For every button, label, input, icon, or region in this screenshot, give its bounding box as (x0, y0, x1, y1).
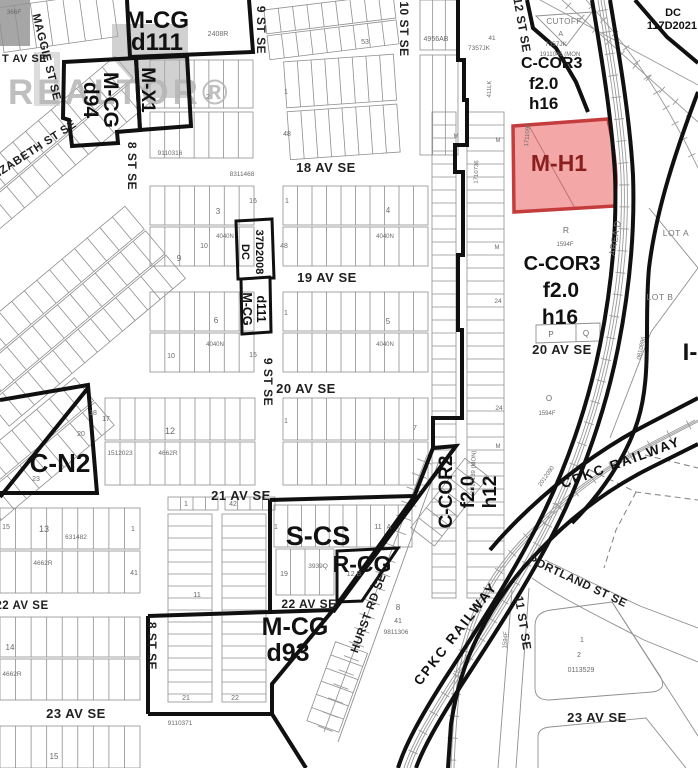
svg-text:d111: d111 (254, 295, 268, 322)
parcel-block (150, 333, 254, 372)
parcel-block (420, 55, 458, 155)
lot-number: 1 (274, 524, 278, 531)
zone-label-dc117-2: 117D2021 (647, 20, 697, 32)
street-10st: 10 ST SE (397, 1, 411, 56)
lot-number: 21 (182, 695, 190, 702)
parcel-label: 4956AB (424, 36, 449, 43)
lot-number: 1 (284, 89, 288, 96)
lot-number: 22 (231, 695, 239, 702)
zone-label-ig: I- (683, 339, 698, 366)
cutoff-lot-a: A (558, 29, 564, 38)
parcel-below-23av-outline (538, 718, 686, 768)
parcel-label: 4040N (216, 234, 234, 240)
parcel-block (264, 0, 396, 34)
parcel-label: 0113529 (568, 667, 595, 674)
parcel-label: 1710736 (474, 160, 481, 184)
parcel-label: 1594F (556, 242, 573, 248)
lot-number: 23 (32, 476, 40, 483)
zone-label-ccor3-mid-f: f2.0 (543, 279, 579, 302)
parcel-label: 631482 (65, 534, 87, 541)
zone-label-ccor3-top-h: h16 (529, 94, 558, 113)
parcel-label: Q (583, 329, 589, 338)
lot-number: M (454, 134, 459, 140)
parcel-block (283, 227, 428, 266)
lot-number: 17 (102, 416, 110, 423)
zone-label-dc37: 37D2008 DC (239, 230, 265, 275)
lot-number: 15 (2, 524, 10, 531)
parcel-block (105, 398, 255, 440)
lot-strip (467, 112, 504, 598)
lot-number: 4 (386, 206, 391, 215)
svg-text:37D2008: 37D2008 (253, 230, 265, 275)
lot-strip (222, 514, 266, 702)
lot-number: 15 (50, 752, 59, 761)
map-container[interactable]: REALTOR® M-CG d111 M-CG d94 M-X1 C-COR3 … (0, 0, 698, 768)
lot-number: 1 (580, 637, 584, 644)
parcel-label: 3939Q (308, 563, 328, 570)
lot-number: 2 (577, 652, 581, 659)
zone-label-ccor2: C-COR2 f2.0 h12 (436, 456, 501, 529)
svg-text:DC: DC (239, 244, 251, 260)
svg-text:M-CG: M-CG (240, 292, 254, 325)
parcel-label: 4040N (376, 342, 394, 348)
parcel-label: 7357JK (545, 41, 568, 48)
parcel-label: 8311468 (230, 171, 255, 178)
zone-label-cn2: C-N2 (30, 448, 91, 478)
parcel-label: 1911046 (MON (540, 52, 581, 58)
parcel-label: 7357JK (468, 45, 491, 52)
parcel-label: 53 (361, 39, 369, 46)
cutoff-label: CUTOFF (546, 17, 581, 26)
lot-number: 11 (193, 590, 201, 599)
lot-number: M (495, 245, 500, 251)
lot-number: 1 (284, 418, 288, 425)
parcel-block (283, 333, 428, 372)
lot-number: M (496, 444, 501, 450)
zone-label-mx1: M-X1 (137, 67, 158, 113)
parcel-label: 366F (7, 9, 22, 16)
zone-label-scs: S-CS (286, 521, 351, 551)
parcel-block (0, 617, 140, 657)
parcel-block (105, 442, 255, 485)
svg-text:C-COR2: C-COR2 (436, 456, 457, 529)
street-11st: 11 ST SE (512, 595, 534, 651)
lot-number: 14 (6, 643, 15, 652)
lot-a-label: LOT A (663, 228, 689, 238)
lot-number: 9 (177, 254, 182, 263)
parcel-label: 1594F (502, 631, 509, 649)
lot-number: 42 (229, 501, 237, 508)
parcel-label: O (546, 394, 552, 403)
zoning-map: REALTOR® M-CG d111 M-CG d94 M-X1 C-COR3 … (0, 0, 698, 768)
parcel-block (307, 642, 368, 733)
parcel-block (284, 54, 397, 108)
parcel-label: 4040N (376, 234, 394, 240)
zone-label-mcg-d111-mid: d111 M-CG (240, 292, 268, 325)
lot-number: 24 (494, 298, 502, 305)
parcel-block (0, 255, 185, 426)
lot-b-label: LOT B (647, 292, 674, 302)
lot-number: 16 (249, 198, 257, 205)
parcel-label: 1594F (538, 411, 555, 417)
street-20av-west: 20 AV SE (276, 381, 336, 396)
parcel-block (283, 398, 428, 440)
lot-number: 48 (280, 243, 288, 250)
parcel-label: 2012090 (538, 465, 557, 488)
zone-label-dc117: DC (665, 7, 681, 19)
parcel-label: 411LK (487, 80, 494, 97)
parcel-block (283, 186, 428, 225)
street-portland: PORTLAND ST SE (526, 554, 628, 610)
lot-strip (168, 514, 212, 702)
lot-number: 48 (283, 131, 291, 138)
parcel-label: 4040N (206, 342, 224, 348)
lot-number: 8 (396, 603, 401, 612)
street-17av: T AV SE (2, 53, 47, 65)
street-20av-east: 20 AV SE (532, 342, 592, 357)
lot-number: 19 (280, 571, 288, 578)
lot-number: 6 (214, 316, 219, 325)
parcel-label: R (563, 225, 569, 235)
parcel-block (0, 551, 140, 593)
svg-text:d94: d94 (79, 82, 102, 119)
parcel-label: 12 B (347, 571, 362, 578)
zone-label-rcg: R-CG (333, 551, 392, 577)
svg-text:h12: h12 (480, 476, 501, 509)
lot-number: 41 (394, 618, 402, 625)
lot-number: 7 (413, 425, 417, 432)
lot-number: 18 (89, 410, 97, 417)
parcel-label: 9110316 (158, 150, 183, 157)
street-22av-mid: 22 AV SE (281, 597, 336, 611)
parcel-label: 4662R (33, 560, 52, 567)
street-23av-east: 23 AV SE (567, 710, 627, 725)
zone-label-mcg-d111-top-2: d111 (131, 29, 183, 56)
parcel-block (0, 726, 140, 768)
zone-label-mh1: M-H1 (531, 150, 587, 176)
lot-number: 20 (77, 431, 85, 438)
parcel-label: 9110371 (168, 720, 193, 727)
parcel-block (0, 508, 140, 549)
parcel-block (150, 186, 254, 225)
parcel-block (150, 292, 254, 331)
lot-number: 11 (374, 524, 381, 531)
lot-number: 3 (216, 207, 221, 216)
street-9st-mid: 9 ST SE (261, 358, 275, 406)
parcel-block (0, 659, 140, 700)
parcel-label: 9811306 (384, 629, 409, 636)
street-8st-bottom: 8 ST SE (145, 622, 159, 670)
street-8st-top: 8 ST SE (125, 142, 139, 190)
parcel-label: 4662R (2, 671, 21, 678)
lot-number: 10 (200, 243, 208, 250)
parcel-label: 1512023 (107, 450, 133, 457)
lot-number: 24 (495, 405, 503, 412)
lot-number: 12 (165, 426, 175, 436)
lot-number: 1 (184, 501, 188, 508)
street-18av: 18 AV SE (296, 160, 356, 175)
lot-number: 2 (206, 94, 210, 101)
lot-number: 15 (249, 352, 257, 359)
parcel-block (283, 442, 428, 485)
lot-number: 5 (386, 317, 391, 326)
lot-number: 13 (39, 524, 49, 534)
lot-number: 41 (130, 570, 138, 577)
lot-number: 10 (167, 353, 175, 360)
street-23av-west: 23 AV SE (46, 706, 106, 721)
lot-number: A (387, 524, 392, 531)
lot-number: 1 (285, 198, 289, 205)
zone-label-ccor3-mid: C-COR3 (524, 253, 601, 275)
parcel-block (287, 104, 400, 160)
zone-label-mcg-d93: M-CG (262, 613, 329, 641)
street-22av-west: 22 AV SE (0, 600, 49, 612)
parcel-label: 2408R (208, 31, 229, 38)
lot-number: 1 (284, 310, 288, 317)
parcel-label: 4662R (158, 450, 177, 457)
street-21av: 21 AV SE (211, 488, 271, 503)
street-19av: 19 AV SE (297, 270, 357, 285)
zone-label-mcg-d93-2: d93 (266, 639, 309, 667)
lot-number: 1 (131, 526, 135, 533)
watermark-logo-block (0, 0, 30, 46)
street-elizabeth: ELIZABETH ST SE (0, 118, 79, 187)
parcel-block (283, 292, 428, 331)
parcel-label: P (548, 330, 553, 339)
zone-label-ccor3-mid-h: h16 (542, 306, 578, 329)
lot-number: M (496, 138, 501, 144)
parcel-label: 41 (488, 35, 496, 42)
zone-label-ccor3-top-f: f2.0 (529, 74, 558, 93)
street-9st-top: 9 ST SE (254, 6, 268, 54)
